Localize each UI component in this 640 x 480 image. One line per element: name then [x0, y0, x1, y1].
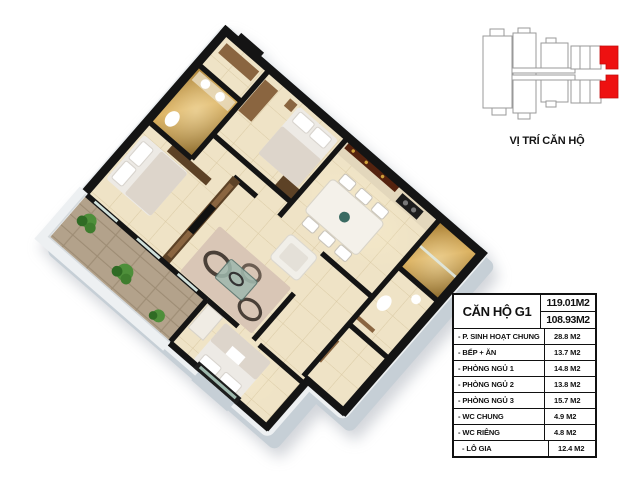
room-area: 14.8 M2 [545, 361, 595, 376]
building-location-map [466, 26, 628, 126]
room-label: - BẾP + ĂN [454, 345, 545, 360]
page: VỊ TRÍ CĂN HỘ CĂN HỘ G1 119.01M2 108.93M… [0, 0, 640, 480]
plan-rotated [32, 19, 490, 472]
room-area: 12.4 M2 [549, 441, 595, 456]
room-label: - WC RIÊNG [454, 425, 545, 440]
room-area: 13.8 M2 [545, 377, 595, 392]
room-area: 28.8 M2 [545, 329, 595, 344]
table-row: - P. SINH HOẠT CHUNG 28.8 M2 [454, 329, 595, 345]
room-area: 15.7 M2 [545, 393, 595, 408]
highlighted-unit [600, 46, 618, 98]
area-table-header: CĂN HỘ G1 119.01M2 108.93M2 [454, 295, 595, 329]
room-label: - LÔ GIA [454, 441, 549, 456]
room-area: 4.8 M2 [545, 425, 595, 440]
table-row: - PHÒNG NGỦ 3 15.7 M2 [454, 393, 595, 409]
table-row: - LÔ GIA 12.4 M2 [454, 441, 595, 456]
unit-name: CĂN HỘ G1 [454, 295, 541, 328]
room-label: - P. SINH HOẠT CHUNG [454, 329, 545, 344]
table-row: - PHÒNG NGỦ 1 14.8 M2 [454, 361, 595, 377]
gross-area: 119.01M2 [541, 295, 595, 312]
room-label: - WC CHUNG [454, 409, 545, 424]
room-label: - PHÒNG NGỦ 3 [454, 393, 545, 408]
room-area: 4.9 M2 [545, 409, 595, 424]
area-table: CĂN HỘ G1 119.01M2 108.93M2 - P. SINH HO… [452, 293, 597, 458]
room-label: - PHÒNG NGỦ 1 [454, 361, 545, 376]
building-outline [483, 28, 601, 119]
net-area: 108.93M2 [541, 312, 595, 328]
table-row: - PHÒNG NGỦ 2 13.8 M2 [454, 377, 595, 393]
table-row: - WC CHUNG 4.9 M2 [454, 409, 595, 425]
room-area: 13.7 M2 [545, 345, 595, 360]
room-label: - PHÒNG NGỦ 2 [454, 377, 545, 392]
table-row: - BẾP + ĂN 13.7 M2 [454, 345, 595, 361]
table-row: - WC RIÊNG 4.8 M2 [454, 425, 595, 441]
location-map-label: VỊ TRÍ CĂN HỘ [466, 135, 628, 147]
